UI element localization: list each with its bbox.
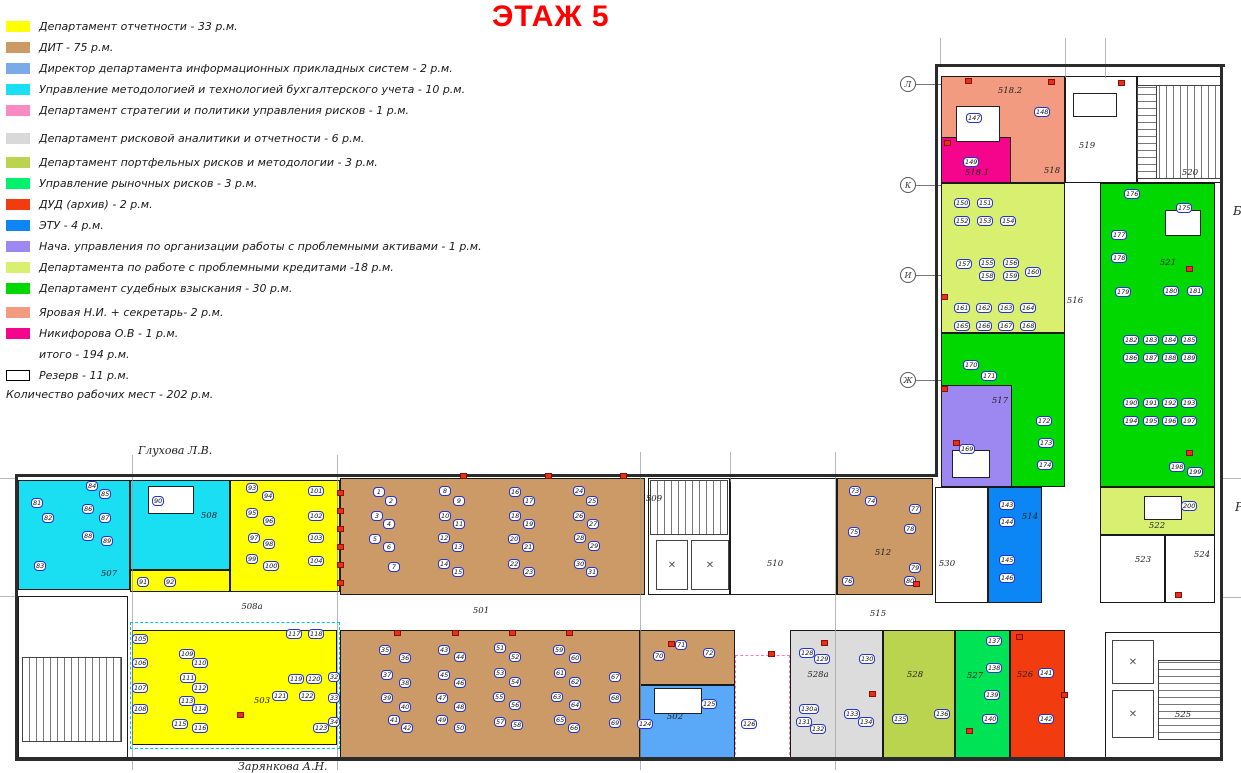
desk-185: 185 [1181,335,1197,345]
room-label-510: 510 [757,559,793,569]
desk-192: 192 [1162,398,1178,408]
axis-label-И: И [900,267,916,283]
desk-40: 40 [399,702,411,712]
desk-32: 32 [328,672,340,682]
room-label-524: 524 [1184,550,1220,560]
legend-swatch [6,21,30,32]
desk-165: 165 [954,321,970,331]
desk-123: 123 [313,723,329,733]
room-530 [935,487,988,603]
legend-swatch [6,42,30,53]
legend-item: Нача. управления по организации работы с… [6,236,482,257]
desk-46: 46 [454,678,466,688]
legend-item: Департамент рисковой аналитики и отчетно… [6,128,482,149]
legend-item: ДУД (архив) - 2 р.м. [6,194,482,215]
desk-92: 92 [164,577,176,587]
desk-36: 36 [399,653,411,663]
room-label-508: 508 [191,511,227,521]
desk-106: 106 [132,658,148,668]
elevator-icon: ✕ [656,540,688,590]
desk-121: 121 [272,691,288,701]
grid-line [0,478,16,479]
desk-157: 157 [956,259,972,269]
desk-182: 182 [1123,335,1139,345]
desk-87: 87 [99,513,111,523]
desk-28: 28 [574,533,586,543]
desk-147: 147 [966,113,982,123]
desk-66: 66 [568,723,580,733]
desk-35: 35 [379,645,391,655]
desk-74: 74 [865,496,877,506]
desk-15: 15 [452,567,464,577]
desk-25: 25 [586,496,598,506]
desk-167: 167 [998,321,1014,331]
room-label-508а: 508а [234,602,270,612]
desk-43: 43 [438,645,450,655]
meeting-table [654,688,702,714]
legend-swatch [6,283,30,294]
desk-142: 142 [1038,714,1054,724]
desk-155: 155 [979,258,995,268]
meeting-table [952,450,990,478]
legend-item-label: Департамент судебных взыскания - 30 р.м. [39,282,292,295]
room-label-519: 519 [1069,141,1105,151]
desk-6: 6 [383,542,395,552]
desk-120: 120 [306,674,322,684]
room-523 [1100,535,1165,603]
outlet-marker [1048,79,1055,85]
outlet-marker [337,490,344,496]
outlet-marker [460,473,467,479]
desk-76: 76 [842,576,854,586]
desk-168: 168 [1020,321,1036,331]
legend-item: Департамент судебных взыскания - 30 р.м. [6,278,482,299]
room-label-523: 523 [1125,555,1161,565]
legend-total: Количество рабочих мест - 202 р.м. [6,388,482,408]
legend-item: ДИТ - 75 р.м. [6,37,482,58]
desk-4: 4 [383,519,395,529]
desk-152: 152 [954,216,970,226]
desk-160: 160 [1025,267,1041,277]
desk-183: 183 [1143,335,1159,345]
outlet-marker [1186,450,1193,456]
desk-58: 58 [511,720,523,730]
grid-line [1105,38,1106,78]
outlet-marker [337,562,344,568]
zone-outline [130,622,340,749]
desk-53: 53 [494,668,506,678]
desk-41: 41 [388,715,400,725]
desk-196: 196 [1162,416,1178,426]
legend-swatch [6,370,30,381]
legend-item: Департамент портфельных рисков и методол… [6,152,482,173]
desk-138: 138 [986,663,1002,673]
desk-16: 16 [509,487,521,497]
grid-line [1065,38,1066,78]
desk-52: 52 [509,652,521,662]
desk-169: 169 [959,444,975,454]
grid-line [940,38,941,66]
legend: Департамент отчетности - 33 р.м. ДИТ - 7… [6,16,482,408]
room-label-507: 507 [91,569,127,579]
desk-193: 193 [1181,398,1197,408]
desk-17: 17 [523,496,535,506]
outlet-marker [821,640,828,646]
desk-50: 50 [454,723,466,733]
desk-117: 117 [286,629,302,639]
desk-34: 34 [328,717,340,727]
desk-14: 14 [438,559,450,569]
desk-151: 151 [977,198,993,208]
desk-122: 122 [299,691,315,701]
outlet-marker [545,473,552,479]
outlet-marker [620,473,627,479]
desk-72: 72 [703,648,715,658]
desk-55: 55 [493,692,505,702]
desk-189: 189 [1181,353,1197,363]
desk-150: 150 [954,198,970,208]
legend-swatch [6,241,30,252]
legend-item: Департамента по работе с проблемными кре… [6,257,482,278]
desk-78: 78 [904,524,916,534]
room-label-528: 528 [897,670,933,680]
legend-item-label: Департамент портфельных рисков и методол… [39,156,378,169]
desk-39: 39 [381,693,393,703]
desk-126: 126 [741,719,757,729]
desk-38: 38 [399,678,411,688]
desk-49: 49 [436,715,448,725]
desk-135: 135 [892,714,908,724]
desk-26: 26 [573,511,585,521]
desk-180: 180 [1163,286,1179,296]
room-501 [340,478,645,595]
desk-82: 82 [42,513,54,523]
desk-83: 83 [34,561,46,571]
meeting-table [1165,210,1201,236]
desk-10: 10 [439,511,451,521]
wall [935,64,1225,67]
desk-95: 95 [246,508,258,518]
legend-item-label: Директор департамента информационных при… [39,62,453,75]
desk-88: 88 [82,531,94,541]
desk-158: 158 [979,271,995,281]
legend-item-label: ЭТУ - 4 р.м. [39,219,104,232]
desk-140: 140 [982,714,998,724]
legend-swatch [6,199,30,210]
desk-136: 136 [934,709,950,719]
desk-102: 102 [308,511,324,521]
axis-label-Ж: Ж [900,372,916,388]
desk-197: 197 [1181,416,1197,426]
desk-199: 199 [1187,467,1203,477]
desk-198: 198 [1169,462,1185,472]
legend-item-label: ДУД (архив) - 2 р.м. [39,198,153,211]
desk-154: 154 [1000,216,1016,226]
desk-61: 61 [554,668,566,678]
desk-21: 21 [522,542,534,552]
desk-45: 45 [438,670,450,680]
legend-item: Управление рыночных рисков - 3 р.м. [6,173,482,194]
legend-item-label: Резерв - 11 р.м. [39,369,129,382]
outlet-marker [941,386,948,392]
desk-191: 191 [1143,398,1159,408]
desk-20: 20 [508,534,520,544]
desk-31: 31 [586,567,598,577]
desk-181: 181 [1187,286,1203,296]
legend-item-label: Департамент отчетности - 33 р.м. [39,20,238,33]
room-527 [955,630,1010,760]
desk-19: 19 [523,519,535,529]
legend-item-label: Департамент стратегии и политики управле… [39,104,409,117]
desk-3: 3 [371,511,383,521]
desk-194: 194 [1123,416,1139,426]
desk-170: 170 [963,360,979,370]
elevator-icon: ✕ [1112,690,1154,738]
desk-48: 48 [454,702,466,712]
desk-195: 195 [1143,416,1159,426]
desk-89: 89 [101,536,113,546]
wall [15,474,937,477]
desk-22: 22 [508,559,520,569]
desk-86: 86 [82,504,94,514]
outlet-marker [944,140,951,146]
outlet-marker [1118,80,1125,86]
desk-63: 63 [551,692,563,702]
desk-161: 161 [954,303,970,313]
outlet-marker [452,630,459,636]
desk-149: 149 [963,157,979,167]
desk-116: 116 [192,723,208,733]
legend-item-label: итого - 194 р.м. [39,348,130,361]
desk-111: 111 [180,673,196,683]
outlet-marker [337,580,344,586]
legend-item: Директор департамента информационных при… [6,58,482,79]
desk-1: 1 [373,487,385,497]
page-title: ЭТАЖ 5 [492,0,610,34]
desk-114: 114 [192,704,208,714]
legend-swatch [6,220,30,231]
desk-132: 132 [810,724,826,734]
desk-67: 67 [609,672,621,682]
room-label-512: 512 [865,548,901,558]
stairs-icon [22,657,122,742]
room-label-518: 518 [1034,166,1070,176]
desk-33: 33 [328,693,340,703]
outlet-marker [1175,592,1182,598]
desk-108: 108 [132,704,148,714]
desk-166: 166 [976,321,992,331]
elevator-icon: ✕ [1112,640,1154,684]
outlet-marker [337,544,344,550]
desk-54: 54 [509,677,521,687]
outlet-marker [768,651,775,657]
desk-104: 104 [308,556,324,566]
desk-68: 68 [609,693,621,703]
desk-71: 71 [675,640,687,650]
desk-24: 24 [573,486,585,496]
room-label-514: 514 [1012,512,1048,522]
desk-47: 47 [436,693,448,703]
desk-128: 128 [799,648,815,658]
desk-153: 153 [977,216,993,226]
desk-119: 119 [288,674,304,684]
desk-8: 8 [439,486,451,496]
desk-100: 100 [263,561,279,571]
desk-125: 125 [701,699,717,709]
outlet-marker [941,294,948,300]
outlet-marker [566,630,573,636]
grid-line [835,452,836,770]
legend-item: Резерв - 11 р.м. [6,365,482,386]
desk-44: 44 [454,652,466,662]
legend-swatch [6,178,30,189]
outlet-marker [394,630,401,636]
desk-107: 107 [132,683,148,693]
desk-77: 77 [909,504,921,514]
desk-188: 188 [1162,353,1178,363]
desk-5: 5 [369,534,381,544]
desk-60: 60 [569,653,581,663]
desk-93: 93 [246,483,258,493]
room-label-521: 521 [1150,258,1186,268]
desk-42: 42 [401,723,413,733]
desk-200: 200 [1181,501,1197,511]
outlet-marker [1186,266,1193,272]
desk-184: 184 [1162,335,1178,345]
room-label-509: 509 [636,494,672,504]
desk-69: 69 [609,718,621,728]
desk-148: 148 [1034,107,1050,117]
desk-130: 130 [859,654,875,664]
desk-51: 51 [494,643,506,653]
desk-134: 134 [858,717,874,727]
desk-130а: 130а [799,704,819,714]
elevator-icon: ✕ [691,540,729,590]
wall [1220,64,1223,761]
desk-62: 62 [569,677,581,687]
desk-101: 101 [308,486,324,496]
room-510 [730,478,837,595]
meeting-table [956,106,1000,142]
desk-105: 105 [132,634,148,644]
desk-73: 73 [849,486,861,496]
outlet-marker [1016,634,1023,640]
room-526 [1010,630,1065,760]
wall [15,757,1223,761]
desk-146: 146 [999,573,1015,583]
desk-81: 81 [31,498,43,508]
room-label-528а: 528а [800,670,836,680]
wall [935,64,938,477]
desk-84: 84 [86,481,98,491]
legend-swatch [6,63,30,74]
outlet-marker [509,630,516,636]
desk-137: 137 [986,636,1002,646]
desk-29: 29 [588,541,600,551]
desk-174: 174 [1037,460,1053,470]
wall [15,474,18,760]
desk-12: 12 [438,533,450,543]
desk-27: 27 [587,519,599,529]
outlet-marker [1061,692,1068,698]
desk-90: 90 [152,496,164,506]
annotation-1: Зарянкова А.Н. [238,760,328,773]
room-label-518.2: 518.2 [992,86,1028,96]
desk-9: 9 [453,496,465,506]
desk-94: 94 [262,491,274,501]
desk-178: 178 [1111,253,1127,263]
desk-186: 186 [1123,353,1139,363]
outlet-marker [913,581,920,587]
desk-187: 187 [1143,353,1159,363]
desk-65: 65 [554,715,566,725]
desk-57: 57 [494,717,506,727]
room-label-525: 525 [1165,710,1201,720]
desk-97: 97 [248,533,260,543]
desk-13: 13 [452,542,464,552]
desk-172: 172 [1036,416,1052,426]
room-label-516: 516 [1057,296,1093,306]
desk-70: 70 [653,651,665,661]
meeting-table [1073,93,1117,117]
legend-swatch [6,328,30,339]
desk-139: 139 [984,690,1000,700]
room-label-501: 501 [463,606,499,616]
axis-label-Л: Л [900,76,916,92]
outlet-marker [668,641,675,647]
desk-145: 145 [999,555,1015,565]
desk-112: 112 [192,683,208,693]
room-524 [1165,535,1215,603]
annotation-3: Р [1235,500,1241,514]
desk-2: 2 [385,496,397,506]
outlet-marker [966,728,973,734]
desk-59: 59 [553,645,565,655]
desk-143: 143 [999,500,1015,510]
desk-91: 91 [137,577,149,587]
legend-item-label: Департамента по работе с проблемными кре… [39,261,394,274]
legend-swatch [6,307,30,318]
outlet-marker [337,508,344,514]
desk-56: 56 [509,700,521,710]
desk-99: 99 [246,554,258,564]
grid-line [730,452,731,482]
room-528 [883,630,955,760]
legend-swatch [6,262,30,273]
desk-156: 156 [1003,258,1019,268]
desk-115: 115 [172,719,188,729]
desk-11: 11 [453,519,465,529]
desk-141: 141 [1038,668,1054,678]
legend-item-label: Яровая Н.И. + секретарь- 2 р.м. [39,306,223,319]
desk-37: 37 [381,670,393,680]
legend-item: Яровая Н.И. + секретарь- 2 р.м. [6,302,482,323]
desk-110: 110 [192,658,208,668]
desk-23: 23 [523,567,535,577]
desk-159: 159 [1003,271,1019,281]
legend-item-label: Управление рыночных рисков - 3 р.м. [39,177,257,190]
outlet-marker [869,691,876,697]
room-label-530: 530 [929,559,965,569]
room-label-502: 502 [657,712,693,722]
outlet-marker [237,712,244,718]
stairs-icon [650,480,728,535]
legend-item: итого - 194 р.м. [6,344,482,365]
desk-96: 96 [263,516,275,526]
legend-item-label: Нача. управления по организации работы с… [39,240,482,253]
room-strategy [735,655,790,760]
legend-swatch [6,133,30,144]
